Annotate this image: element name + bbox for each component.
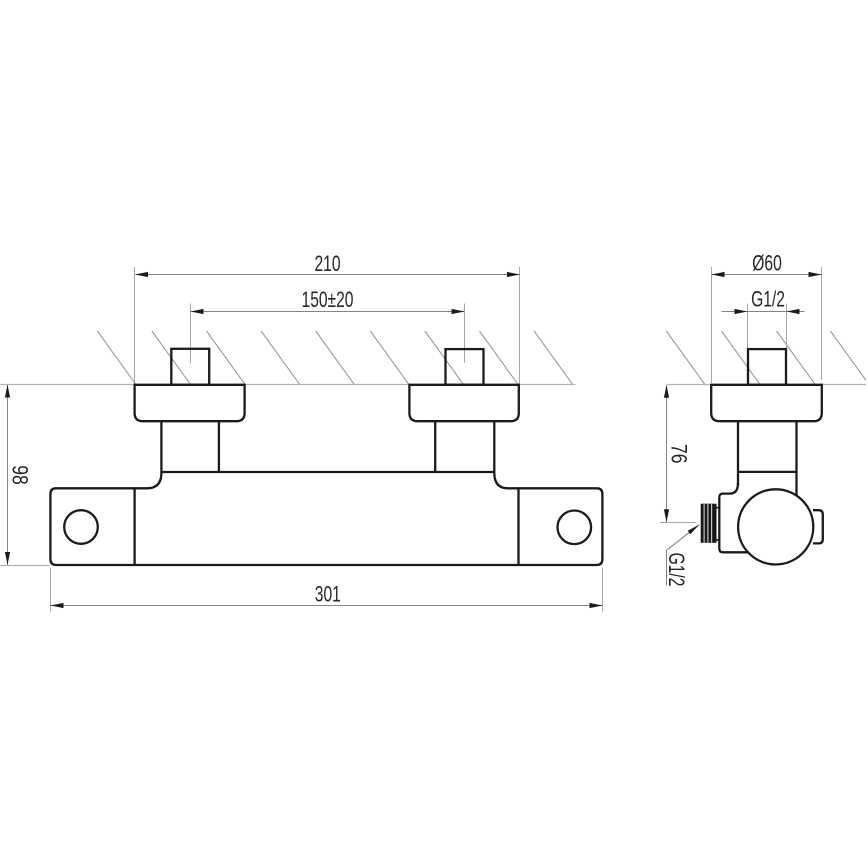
svg-text:210: 210: [314, 252, 340, 276]
svg-text:150±20: 150±20: [302, 289, 354, 313]
svg-text:G1/2: G1/2: [663, 553, 687, 587]
svg-text:98: 98: [7, 465, 31, 485]
svg-text:G1/2: G1/2: [751, 288, 785, 312]
svg-text:Ø60: Ø60: [752, 252, 781, 276]
svg-text:301: 301: [315, 583, 341, 607]
svg-text:76: 76: [666, 444, 690, 464]
